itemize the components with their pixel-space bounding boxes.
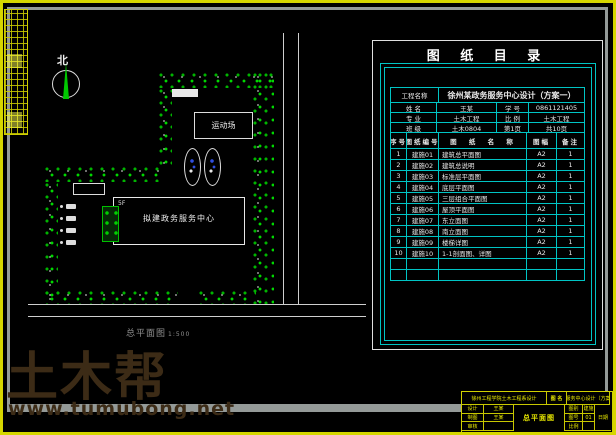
catalog-cell: 9 bbox=[391, 237, 407, 248]
planter-bed bbox=[102, 206, 119, 242]
info-value: 土木工程 bbox=[529, 113, 585, 123]
court-oval-left bbox=[184, 148, 201, 186]
catalog-cell: A2 bbox=[527, 248, 557, 259]
table-row: 8建施08南立面图A21 bbox=[391, 226, 585, 237]
empty-row bbox=[391, 270, 585, 281]
catalog-cell: A2 bbox=[527, 171, 557, 182]
table-row: 1建施01建筑总平面图A21 bbox=[391, 149, 585, 160]
titleblock-label: 设计 bbox=[462, 405, 484, 414]
empty-label-box bbox=[73, 183, 105, 195]
columns-header-row: 序号 图纸编号 图 纸 名 称 图幅 备注 bbox=[391, 133, 585, 149]
titleblock-label: 图别 bbox=[565, 405, 583, 414]
titleblock-name-label: 图 名 bbox=[547, 392, 567, 405]
titleblock-left-row: 审核 bbox=[462, 422, 514, 431]
catalog-cell: 标准层平面图 bbox=[439, 171, 527, 182]
catalog-cell: 东立面图 bbox=[439, 215, 527, 226]
catalog-cell: 5 bbox=[391, 193, 407, 204]
project-value: 徐州某政务服务中心设计（方案一） bbox=[439, 88, 585, 103]
titleblock-left-row: 设计王某 bbox=[462, 405, 514, 414]
titleblock-label: 图号 bbox=[565, 414, 583, 423]
catalog-cell: 2 bbox=[391, 160, 407, 171]
titleblock-left-row: 制图王某 bbox=[462, 414, 514, 423]
table-row: 2建施02建筑总说明A21 bbox=[391, 160, 585, 171]
titleblock-right-row: 图号01 bbox=[565, 414, 595, 423]
titleblock-label: 比例 bbox=[565, 422, 583, 431]
frame-line-right bbox=[605, 7, 608, 412]
watermark-url: www.tumubong.net bbox=[8, 398, 235, 420]
table-row: 10建施101-1剖面图、详图A21 bbox=[391, 248, 585, 259]
catalog-cell: 底层平面图 bbox=[439, 182, 527, 193]
tree-strip-inner-left bbox=[158, 88, 172, 172]
catalog-cell: 1 bbox=[557, 226, 585, 237]
tree-strip-left bbox=[44, 182, 58, 304]
titleblock-value: 01 bbox=[583, 414, 595, 423]
catalog-sheet: 图 纸 目 录 工程名称 徐州某政务服务中心设计（方案一） 姓 名王某学 号08… bbox=[372, 40, 603, 350]
titleblock-label: 审核 bbox=[462, 422, 484, 431]
info-label: 姓 名 bbox=[391, 103, 437, 113]
col-header: 图纸编号 bbox=[407, 133, 439, 149]
catalog-cell: 建施08 bbox=[407, 226, 439, 237]
info-value: 土木0804 bbox=[437, 123, 497, 133]
catalog-cell: 1 bbox=[557, 171, 585, 182]
catalog-cell: 3 bbox=[391, 171, 407, 182]
catalog-cell: 建施06 bbox=[407, 204, 439, 215]
info-value: 土木工程 bbox=[437, 113, 497, 123]
titleblock-project: 政务服务中心设计（方案一） bbox=[567, 392, 610, 405]
catalog-cell: 4 bbox=[391, 182, 407, 193]
catalog-cell: A2 bbox=[527, 193, 557, 204]
cad-drawing-canvas: 北 运动场 5F 拟建政务服务中心 总平面图1:500 图 纸 目 录 工程名称 bbox=[0, 0, 616, 435]
road-line-vertical-2 bbox=[298, 33, 299, 304]
catalog-cell: 10 bbox=[391, 248, 407, 259]
catalog-cell: 1 bbox=[557, 160, 585, 171]
catalog-cell: 建施01 bbox=[407, 149, 439, 160]
catalog-cell: 1 bbox=[557, 193, 585, 204]
catalog-cell: 建施07 bbox=[407, 215, 439, 226]
titleblock-value: 建施 bbox=[583, 405, 595, 414]
catalog-cell: 1 bbox=[557, 215, 585, 226]
tree-strip-middle bbox=[44, 166, 164, 182]
catalog-cell: A2 bbox=[527, 226, 557, 237]
road-line-horizontal-2 bbox=[28, 316, 366, 317]
catalog-table: 工程名称 徐州某政务服务中心设计（方案一） 姓 名王某学 号0861121405… bbox=[390, 87, 585, 281]
tree-strip-bottom-b bbox=[198, 290, 256, 305]
titleblock-value bbox=[583, 422, 595, 431]
catalog-cell: 6 bbox=[391, 204, 407, 215]
catalog-cell: 屋顶平面图 bbox=[439, 204, 527, 215]
catalog-cell: A2 bbox=[527, 182, 557, 193]
table-row: 3建施03标准层平面图A21 bbox=[391, 171, 585, 182]
plan-scale: 1:500 bbox=[168, 331, 190, 338]
titleblock-school: 徐州工程学院土木工程系设计 bbox=[462, 392, 547, 405]
catalog-cell: 1 bbox=[557, 237, 585, 248]
info-label: 比 例 bbox=[497, 113, 529, 123]
north-arrow-icon bbox=[63, 63, 69, 99]
parking-symbol bbox=[66, 228, 76, 233]
frame-line-top bbox=[7, 7, 608, 10]
catalog-cell-empty bbox=[407, 270, 439, 281]
info-row: 姓 名王某学 号0861121405 bbox=[391, 103, 585, 113]
col-header: 序号 bbox=[391, 133, 407, 149]
titleblock-drawing-name: 总平面图 bbox=[514, 405, 565, 431]
catalog-cell: 三层组合平面图 bbox=[439, 193, 527, 204]
col-header: 图 纸 名 称 bbox=[439, 133, 527, 149]
col-header: 图幅 bbox=[527, 133, 557, 149]
catalog-cell-empty bbox=[391, 259, 407, 270]
info-label: 专 业 bbox=[391, 113, 437, 123]
catalog-cell: 建施04 bbox=[407, 182, 439, 193]
parking-symbol bbox=[66, 204, 76, 209]
catalog-cell-empty bbox=[527, 259, 557, 270]
sports-field-box: 运动场 bbox=[194, 112, 253, 139]
building-name-label: 拟建政务服务中心 bbox=[114, 213, 244, 224]
catalog-cell: 建施10 bbox=[407, 248, 439, 259]
info-value: 0861121405 bbox=[529, 103, 585, 113]
catalog-cell: 建施02 bbox=[407, 160, 439, 171]
plan-caption: 总平面图1:500 bbox=[126, 326, 190, 339]
catalog-cell-empty bbox=[439, 259, 527, 270]
titleblock-date-cell: 日期 bbox=[595, 405, 611, 431]
catalog-cell: 1 bbox=[557, 248, 585, 259]
catalog-cell-empty bbox=[527, 270, 557, 281]
building-outline: 5F 拟建政务服务中心 bbox=[113, 197, 245, 245]
catalog-cell: A2 bbox=[527, 160, 557, 171]
catalog-cell: 建筑总平面图 bbox=[439, 149, 527, 160]
road-line-vertical-1 bbox=[283, 33, 284, 304]
catalog-cell-empty bbox=[439, 270, 527, 281]
project-label: 工程名称 bbox=[391, 88, 439, 103]
info-label: 班 级 bbox=[391, 123, 437, 133]
tree-strip-bottom-a bbox=[44, 290, 178, 305]
catalog-cell: 建施09 bbox=[407, 237, 439, 248]
sports-field-label: 运动场 bbox=[212, 120, 236, 131]
info-value: 王某 bbox=[437, 103, 497, 113]
catalog-cell-empty bbox=[557, 259, 585, 270]
titleblock-value: 王某 bbox=[484, 405, 514, 414]
parking-symbol bbox=[66, 240, 76, 245]
catalog-cell-empty bbox=[391, 270, 407, 281]
info-value: 共10页 bbox=[529, 123, 585, 133]
catalog-cell-empty bbox=[557, 270, 585, 281]
catalog-cell: 建筑总说明 bbox=[439, 160, 527, 171]
catalog-cell: 8 bbox=[391, 226, 407, 237]
titleblock-value: 王某 bbox=[484, 414, 514, 423]
table-row: 4建施04底层平面图A21 bbox=[391, 182, 585, 193]
building-floors-label: 5F bbox=[118, 200, 125, 207]
titleblock-label: 制图 bbox=[462, 414, 484, 423]
catalog-cell: 1 bbox=[557, 204, 585, 215]
info-label: 第1页 bbox=[497, 123, 529, 133]
catalog-cell: A2 bbox=[527, 215, 557, 226]
table-row: 5建施05三层组合平面图A21 bbox=[391, 193, 585, 204]
catalog-cell: A2 bbox=[527, 149, 557, 160]
titleblock-right-row: 比例 bbox=[565, 422, 595, 431]
catalog-cell: 7 bbox=[391, 215, 407, 226]
catalog-title: 图 纸 目 录 bbox=[373, 45, 602, 64]
catalog-cell: 建施05 bbox=[407, 193, 439, 204]
road-line-horizontal-1 bbox=[28, 304, 366, 305]
catalog-cell: 楼梯详图 bbox=[439, 237, 527, 248]
tree-strip-right bbox=[252, 72, 274, 304]
project-row: 工程名称 徐州某政务服务中心设计（方案一） bbox=[391, 88, 585, 103]
info-label: 学 号 bbox=[497, 103, 529, 113]
table-row: 9建施09楼梯详图A21 bbox=[391, 237, 585, 248]
titleblock-right-row: 图别建施 bbox=[565, 405, 595, 414]
table-row: 7建施07东立面图A21 bbox=[391, 215, 585, 226]
titleblock-value bbox=[484, 422, 514, 431]
catalog-cell: A2 bbox=[527, 204, 557, 215]
watermark-logo: 土木帮 bbox=[6, 352, 168, 404]
col-header: 备注 bbox=[557, 133, 585, 149]
table-row: 6建施06屋顶平面图A21 bbox=[391, 204, 585, 215]
catalog-cell: 1 bbox=[391, 149, 407, 160]
catalog-cell: 1 bbox=[557, 182, 585, 193]
empty-row bbox=[391, 259, 585, 270]
plan-label-block bbox=[172, 89, 198, 97]
catalog-cell: 南立面图 bbox=[439, 226, 527, 237]
title-block: 徐州工程学院土木工程系设计 图 名 政务服务中心设计（方案一） 设计王某制图王某… bbox=[461, 391, 613, 433]
catalog-cell: 1-1剖面图、详图 bbox=[439, 248, 527, 259]
catalog-cell-empty bbox=[407, 259, 439, 270]
parking-symbol bbox=[66, 216, 76, 221]
court-oval-right bbox=[204, 148, 221, 186]
info-row: 专 业土木工程比 例土木工程 bbox=[391, 113, 585, 123]
catalog-cell: 建施03 bbox=[407, 171, 439, 182]
catalog-cell: A2 bbox=[527, 237, 557, 248]
catalog-cell: 1 bbox=[557, 149, 585, 160]
signature-strip bbox=[4, 9, 28, 135]
info-row: 班 级土木0804第1页共10页 bbox=[391, 123, 585, 133]
